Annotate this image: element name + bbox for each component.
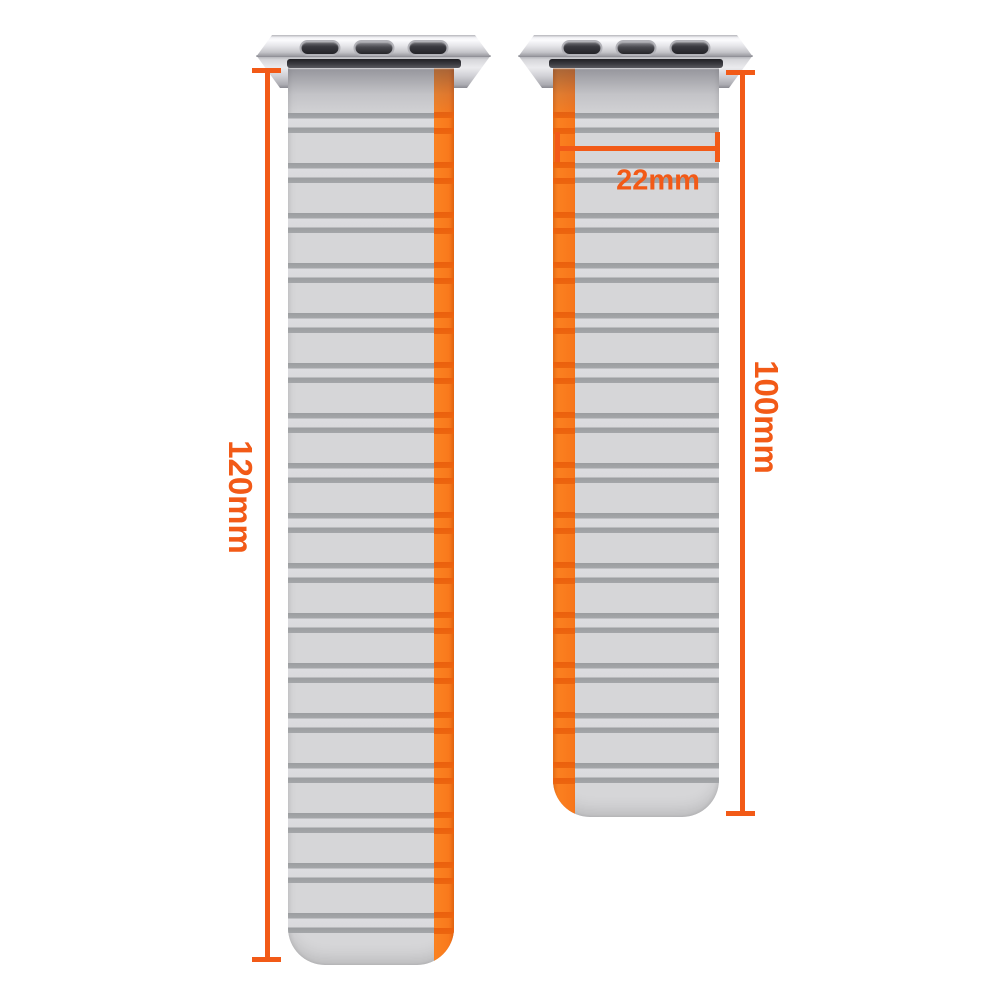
left-band-adapter-shadow xyxy=(288,64,454,119)
stripe-ridge-band xyxy=(434,162,454,184)
dimension-tick-22mm-left xyxy=(555,132,560,162)
strap-ridge-groove xyxy=(288,863,454,883)
stripe-ridge-band xyxy=(553,612,575,634)
right-adapter-buttons xyxy=(561,40,710,56)
dimension-tick-100mm-bottom xyxy=(726,811,755,816)
strap-ridge-groove xyxy=(553,713,719,733)
strap-ridge-groove xyxy=(288,463,454,483)
adapter-lug-button xyxy=(561,40,602,56)
adapter-lug-button xyxy=(669,40,710,56)
strap-ridge-groove xyxy=(553,463,719,483)
strap-ridge-groove xyxy=(288,663,454,683)
stripe-ridge-band xyxy=(553,262,575,284)
stripe-ridge-band xyxy=(553,462,575,484)
stripe-ridge-band xyxy=(434,812,454,834)
dimension-tick-120mm-bottom xyxy=(252,957,281,962)
strap-ridge-groove xyxy=(288,363,454,383)
left-adapter-buttons xyxy=(299,40,448,56)
strap-ridge-groove xyxy=(553,613,719,633)
dimension-tick-120mm-top xyxy=(252,68,281,73)
stripe-ridge-band xyxy=(434,712,454,734)
strap-ridge-groove xyxy=(288,813,454,833)
strap-ridge-groove xyxy=(553,763,719,783)
strap-ridge-groove xyxy=(288,163,454,183)
strap-ridge-groove xyxy=(288,413,454,433)
strap-ridge-groove xyxy=(288,713,454,733)
adapter-release-button xyxy=(353,40,394,56)
stripe-ridge-band xyxy=(553,412,575,434)
strap-ridge-groove xyxy=(553,263,719,283)
strap-ridge-groove xyxy=(288,313,454,333)
left-adapter-slot xyxy=(287,59,461,68)
strap-ridge-groove xyxy=(288,613,454,633)
adapter-lug-button xyxy=(299,40,340,56)
dimension-tick-100mm-top xyxy=(726,70,755,75)
right-band-orange-stripe xyxy=(553,64,575,817)
strap-ridge-groove xyxy=(288,763,454,783)
stripe-ridge-band xyxy=(434,362,454,384)
right-adapter-slot xyxy=(549,59,723,68)
stripe-ridge-band xyxy=(434,862,454,884)
stripe-ridge-band xyxy=(553,512,575,534)
strap-ridge-groove xyxy=(553,363,719,383)
dimension-line-22mm xyxy=(558,146,718,151)
strap-ridge-groove xyxy=(553,313,719,333)
stripe-ridge-band xyxy=(553,162,575,184)
strap-ridge-groove xyxy=(553,513,719,533)
dimension-line-100mm xyxy=(740,73,745,815)
dimension-label-22mm: 22mm xyxy=(616,165,700,198)
stripe-ridge-band xyxy=(434,512,454,534)
stripe-ridge-band xyxy=(434,412,454,434)
dimension-label-120mm: 120mm xyxy=(221,440,259,554)
strap-ridge-groove xyxy=(553,413,719,433)
strap-ridge-groove xyxy=(553,563,719,583)
strap-ridge-groove xyxy=(288,263,454,283)
strap-ridge-groove xyxy=(288,913,454,933)
strap-ridge-groove xyxy=(553,213,719,233)
product-diagram: 120mm 100mm 22mm xyxy=(0,0,1000,1000)
stripe-ridge-band xyxy=(434,662,454,684)
dimension-label-100mm: 100mm xyxy=(747,360,785,474)
strap-ridge-groove xyxy=(288,563,454,583)
dimension-line-120mm xyxy=(265,71,270,961)
stripe-ridge-band xyxy=(553,312,575,334)
strap-ridge-groove xyxy=(553,663,719,683)
stripe-ridge-band xyxy=(434,562,454,584)
adapter-release-button xyxy=(615,40,656,56)
stripe-ridge-band xyxy=(434,312,454,334)
stripe-ridge-band xyxy=(553,212,575,234)
stripe-ridge-band xyxy=(553,712,575,734)
stripe-ridge-band xyxy=(434,612,454,634)
stripe-ridge-band xyxy=(434,212,454,234)
left-band-strap xyxy=(288,64,454,965)
adapter-lug-button xyxy=(407,40,448,56)
dimension-tick-22mm-right xyxy=(715,132,720,162)
stripe-ridge-band xyxy=(434,462,454,484)
stripe-ridge-band xyxy=(553,762,575,784)
stripe-ridge-band xyxy=(434,912,454,934)
stripe-ridge-band xyxy=(553,562,575,584)
left-band-orange-stripe xyxy=(434,64,454,965)
right-band-adapter-shadow xyxy=(553,64,719,119)
strap-ridge-groove xyxy=(288,213,454,233)
left-band-ridges xyxy=(288,64,454,965)
strap-ridge-groove xyxy=(288,513,454,533)
stripe-ridge-band xyxy=(553,662,575,684)
stripe-ridge-band xyxy=(434,762,454,784)
stripe-ridge-band xyxy=(434,262,454,284)
stripe-ridge-band xyxy=(553,362,575,384)
